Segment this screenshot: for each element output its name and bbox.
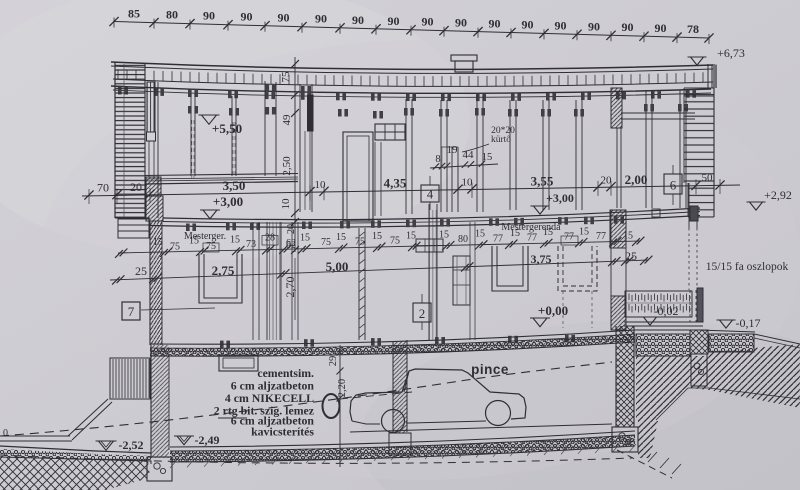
svg-text:75: 75 — [280, 71, 292, 83]
svg-text:-2,52: -2,52 — [119, 438, 144, 452]
svg-text:2: 2 — [419, 306, 426, 321]
svg-text:15: 15 — [543, 227, 553, 238]
svg-text:20: 20 — [286, 224, 297, 234]
svg-text:5,00: 5,00 — [326, 259, 349, 274]
svg-text:70: 70 — [97, 180, 109, 194]
svg-text:90: 90 — [522, 18, 534, 32]
svg-text:10: 10 — [462, 177, 474, 189]
svg-text:3,55: 3,55 — [531, 173, 554, 188]
svg-text:62: 62 — [286, 238, 296, 249]
svg-text:90: 90 — [203, 9, 215, 23]
svg-text:15: 15 — [189, 235, 199, 246]
svg-text:2,50: 2,50 — [281, 156, 293, 176]
svg-text:77: 77 — [564, 232, 574, 243]
svg-text:+0,00: +0,00 — [538, 303, 568, 318]
svg-text:90: 90 — [315, 12, 327, 26]
svg-text:-2,49: -2,49 — [195, 433, 220, 447]
svg-text:6: 6 — [670, 178, 677, 193]
svg-text:80: 80 — [458, 234, 468, 245]
svg-text:2,00: 2,00 — [625, 172, 648, 187]
svg-text:75: 75 — [390, 236, 400, 247]
svg-text:25: 25 — [625, 249, 637, 263]
svg-text:85: 85 — [128, 7, 140, 21]
svg-text:19: 19 — [447, 144, 459, 156]
svg-text:+2,92: +2,92 — [764, 188, 792, 202]
svg-text:0: 0 — [3, 428, 8, 439]
svg-text:90: 90 — [422, 15, 434, 29]
svg-text:kavicsterítés: kavicsterítés — [251, 425, 314, 439]
svg-text:78: 78 — [687, 22, 699, 36]
svg-text:90: 90 — [588, 19, 600, 33]
svg-text:90: 90 — [241, 10, 253, 24]
svg-text:-0,17: -0,17 — [736, 316, 761, 330]
svg-text:90: 90 — [622, 20, 634, 34]
svg-text:+3,00: +3,00 — [546, 191, 574, 205]
svg-text:15: 15 — [406, 230, 416, 241]
svg-text:15: 15 — [230, 234, 240, 245]
svg-text:90: 90 — [555, 18, 567, 32]
svg-text:-0,02: -0,02 — [654, 304, 679, 318]
svg-text:75: 75 — [206, 241, 216, 252]
svg-text:+6,73: +6,73 — [717, 46, 745, 60]
svg-text:73: 73 — [246, 239, 256, 250]
svg-text:49: 49 — [281, 114, 293, 126]
svg-text:90: 90 — [455, 16, 467, 30]
svg-text:77: 77 — [596, 231, 606, 242]
svg-text:90: 90 — [655, 21, 667, 35]
svg-text:90: 90 — [489, 17, 501, 31]
svg-text:77: 77 — [527, 233, 537, 244]
svg-text:75: 75 — [321, 237, 331, 248]
svg-text:3,75: 3,75 — [531, 252, 552, 266]
svg-text:+5,50: +5,50 — [212, 121, 242, 136]
svg-text:2,20: 2,20 — [337, 379, 348, 397]
svg-text:90: 90 — [352, 13, 364, 27]
svg-text:15: 15 — [510, 228, 520, 239]
svg-text:50: 50 — [702, 172, 714, 184]
svg-text:20: 20 — [601, 174, 613, 186]
svg-text:25: 25 — [135, 264, 147, 278]
svg-text:+3,00: +3,00 — [213, 194, 243, 209]
svg-text:7: 7 — [128, 304, 135, 319]
svg-text:90: 90 — [278, 11, 290, 25]
svg-text:29: 29 — [328, 356, 339, 367]
svg-text:75: 75 — [170, 242, 180, 253]
svg-text:15: 15 — [336, 232, 346, 243]
svg-text:44: 44 — [463, 149, 475, 161]
svg-text:10: 10 — [315, 179, 327, 191]
svg-text:2,75: 2,75 — [212, 263, 235, 278]
svg-text:4,35: 4,35 — [384, 176, 407, 191]
svg-text:pince: pince — [471, 362, 509, 377]
svg-text:3,50: 3,50 — [223, 178, 246, 193]
svg-text:15: 15 — [300, 233, 310, 244]
svg-text:10: 10 — [280, 198, 292, 210]
svg-text:kürtő: kürtő — [491, 135, 511, 145]
svg-text:80: 80 — [166, 8, 178, 22]
svg-text:90: 90 — [388, 14, 400, 28]
svg-text:77: 77 — [493, 233, 503, 244]
svg-text:8: 8 — [435, 154, 440, 165]
svg-text:15: 15 — [579, 226, 589, 237]
svg-text:15: 15 — [372, 231, 382, 242]
svg-text:15/15 fa oszlopok: 15/15 fa oszlopok — [706, 261, 789, 273]
svg-text:20: 20 — [130, 180, 142, 194]
svg-text:15: 15 — [475, 229, 485, 240]
svg-text:4: 4 — [427, 188, 434, 202]
